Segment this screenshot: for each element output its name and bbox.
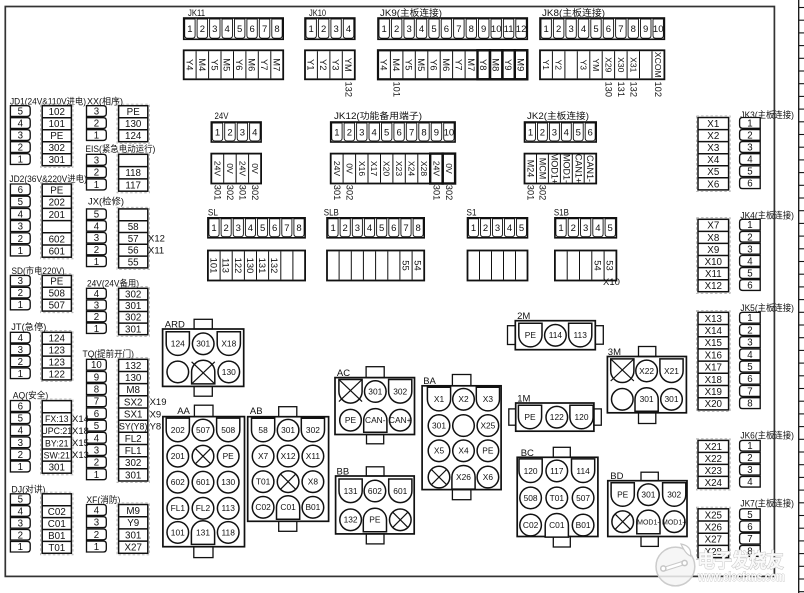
svg-text:1: 1	[18, 155, 23, 166]
svg-text:X1: X1	[707, 119, 719, 130]
svg-text:301: 301	[368, 386, 382, 396]
svg-text:SX1: SX1	[124, 410, 143, 421]
svg-text:132: 132	[125, 361, 141, 372]
svg-text:Y5: Y5	[404, 59, 415, 70]
svg-text:3: 3	[94, 518, 99, 529]
svg-text:SX2: SX2	[124, 397, 143, 408]
svg-text:131: 131	[344, 486, 358, 496]
svg-text:3: 3	[747, 465, 752, 476]
svg-text:Y5: Y5	[209, 59, 220, 70]
svg-text:FL2: FL2	[196, 503, 211, 513]
svg-text:302: 302	[306, 425, 320, 435]
svg-text:1: 1	[528, 127, 533, 138]
svg-text:132: 132	[628, 82, 638, 98]
svg-text:B01: B01	[305, 502, 320, 512]
svg-text:2: 2	[200, 24, 205, 35]
svg-text:6: 6	[747, 374, 752, 385]
svg-text:X6: X6	[483, 472, 494, 482]
svg-text:101: 101	[392, 82, 402, 98]
svg-text:11: 11	[504, 24, 514, 35]
svg-text:SD(市电220V): SD(市电220V)	[12, 265, 65, 276]
svg-text:301: 301	[196, 339, 210, 349]
svg-text:M6: M6	[441, 58, 452, 71]
svg-text:X17: X17	[369, 161, 379, 177]
svg-text:5: 5	[431, 24, 436, 35]
svg-text:2: 2	[394, 24, 399, 35]
svg-text:X2: X2	[707, 131, 719, 142]
svg-text:2: 2	[321, 24, 326, 35]
svg-text:3: 3	[18, 345, 23, 356]
svg-text:YM: YM	[343, 58, 354, 72]
svg-text:7: 7	[456, 24, 461, 35]
svg-text:EIS(紧急电动运行): EIS(紧急电动运行)	[85, 143, 155, 154]
svg-text:X8: X8	[308, 477, 319, 487]
svg-text:301: 301	[432, 421, 446, 431]
svg-text:2: 2	[94, 312, 99, 323]
svg-text:X9: X9	[150, 409, 162, 420]
svg-text:1: 1	[471, 223, 476, 234]
svg-text:120: 120	[575, 412, 589, 422]
svg-text:2: 2	[94, 245, 99, 256]
svg-text:113: 113	[574, 330, 588, 340]
svg-text:JK8(主板连接): JK8(主板连接)	[542, 7, 605, 18]
svg-text:131: 131	[616, 82, 626, 98]
svg-text:BY:21: BY:21	[45, 438, 69, 448]
svg-text:4: 4	[225, 24, 230, 35]
svg-text:3: 3	[94, 155, 99, 166]
svg-text:X10: X10	[603, 277, 620, 288]
svg-text:124: 124	[125, 131, 142, 142]
svg-text:1: 1	[330, 223, 335, 234]
svg-text:102: 102	[49, 107, 65, 118]
svg-text:Y2: Y2	[554, 60, 564, 71]
svg-text:131: 131	[196, 527, 210, 537]
svg-text:4: 4	[248, 223, 253, 234]
svg-text:118: 118	[125, 168, 141, 179]
svg-text:53: 53	[605, 260, 616, 270]
svg-text:302: 302	[444, 185, 454, 201]
svg-text:Y9: Y9	[503, 59, 514, 70]
svg-text:8: 8	[296, 223, 301, 234]
svg-text:3: 3	[406, 24, 411, 35]
svg-text:9: 9	[643, 24, 648, 35]
svg-text:X15: X15	[72, 438, 89, 449]
svg-text:301: 301	[332, 185, 342, 201]
svg-text:1: 1	[215, 127, 220, 138]
svg-text:5: 5	[379, 223, 384, 234]
svg-text:4: 4	[18, 507, 24, 518]
svg-text:2: 2	[540, 127, 545, 138]
svg-text:XF(消防): XF(消防)	[86, 494, 120, 505]
svg-text:4: 4	[747, 256, 753, 267]
svg-text:57: 57	[128, 234, 139, 245]
svg-text:601: 601	[196, 477, 210, 487]
svg-text:5: 5	[576, 127, 581, 138]
svg-text:5: 5	[519, 223, 524, 234]
svg-text:C01: C01	[48, 519, 66, 530]
svg-text:MOD1-: MOD1-	[561, 154, 571, 183]
svg-text:3: 3	[333, 24, 338, 35]
svg-text:508: 508	[524, 493, 538, 503]
svg-text:JD2(36V&220V进电): JD2(36V&220V进电)	[9, 173, 87, 184]
svg-text:302: 302	[125, 290, 141, 301]
svg-text:M7: M7	[466, 58, 477, 71]
svg-text:C02: C02	[255, 502, 271, 512]
svg-text:5: 5	[18, 495, 23, 506]
svg-text:CAN+: CAN+	[389, 415, 412, 425]
svg-text:YM: YM	[591, 58, 601, 71]
svg-text:3: 3	[236, 223, 241, 234]
svg-text:C01: C01	[280, 502, 296, 512]
svg-text:54: 54	[592, 260, 603, 270]
svg-text:4: 4	[747, 477, 753, 488]
svg-text:5: 5	[94, 210, 99, 221]
svg-text:2: 2	[483, 223, 488, 234]
svg-text:301: 301	[281, 425, 295, 435]
svg-text:C02: C02	[523, 520, 539, 530]
svg-text:X27: X27	[124, 543, 141, 554]
svg-text:101: 101	[209, 258, 220, 274]
svg-text:117: 117	[550, 466, 564, 476]
svg-text:Y6: Y6	[234, 59, 245, 70]
svg-text:10: 10	[491, 24, 502, 35]
svg-text:0V: 0V	[250, 163, 260, 174]
svg-text:4: 4	[252, 127, 257, 138]
svg-text:1: 1	[18, 246, 23, 257]
svg-text:1: 1	[18, 542, 23, 553]
svg-text:4: 4	[18, 209, 24, 220]
svg-text:301: 301	[125, 470, 141, 481]
svg-text:3: 3	[18, 222, 23, 233]
svg-text:302: 302	[49, 143, 65, 154]
svg-text:4: 4	[18, 333, 24, 344]
svg-text:JK7(主板连接): JK7(主板连接)	[740, 498, 794, 509]
svg-text:FL1: FL1	[171, 503, 186, 513]
svg-text:PE: PE	[524, 412, 536, 422]
svg-text:www.elecfans.com: www.elecfans.com	[697, 569, 785, 584]
svg-text:SL: SL	[208, 208, 218, 218]
svg-text:X17: X17	[705, 363, 722, 374]
svg-text:3: 3	[18, 518, 23, 529]
svg-text:118: 118	[222, 527, 236, 537]
svg-text:301: 301	[640, 394, 654, 404]
svg-text:JK12(功能备用端子): JK12(功能备用端子)	[334, 110, 422, 121]
svg-text:4: 4	[94, 222, 100, 233]
svg-text:M8: M8	[126, 385, 140, 396]
svg-text:117: 117	[125, 181, 141, 192]
svg-text:FL2: FL2	[125, 434, 142, 445]
svg-text:4: 4	[564, 127, 569, 138]
svg-text:X18: X18	[72, 426, 89, 437]
svg-text:302: 302	[125, 458, 141, 469]
svg-text:1: 1	[94, 131, 99, 142]
svg-text:X20: X20	[705, 399, 723, 410]
svg-text:122: 122	[550, 412, 564, 422]
svg-text:3: 3	[747, 143, 752, 154]
svg-text:302: 302	[250, 185, 260, 201]
svg-text:TQ(提前开门): TQ(提前开门)	[83, 348, 135, 359]
svg-text:1: 1	[18, 369, 23, 380]
svg-text:4: 4	[94, 289, 100, 300]
svg-text:4: 4	[18, 426, 24, 437]
svg-text:C02: C02	[48, 507, 66, 518]
svg-text:MCM: MCM	[537, 158, 547, 180]
svg-text:24V: 24V	[215, 111, 229, 121]
svg-text:3: 3	[94, 301, 99, 312]
svg-text:114: 114	[549, 330, 563, 340]
svg-text:X26: X26	[456, 472, 471, 482]
svg-text:JK6(主板连接): JK6(主板连接)	[740, 430, 794, 441]
svg-text:X11: X11	[306, 451, 321, 461]
svg-text:X5: X5	[434, 446, 445, 456]
svg-text:202: 202	[171, 425, 185, 435]
svg-text:XX(相序): XX(相序)	[87, 96, 123, 107]
svg-text:JK9(主板连接): JK9(主板连接)	[380, 7, 442, 18]
svg-text:C01: C01	[549, 520, 565, 530]
svg-text:PE: PE	[223, 451, 235, 461]
svg-text:M4: M4	[197, 58, 208, 71]
svg-text:4: 4	[94, 506, 100, 517]
svg-text:X29: X29	[603, 57, 613, 73]
svg-text:130: 130	[603, 82, 613, 98]
svg-text:4: 4	[367, 223, 372, 234]
svg-text:2: 2	[223, 223, 228, 234]
svg-text:X20: X20	[382, 161, 392, 177]
svg-text:6: 6	[249, 24, 254, 35]
svg-text:201: 201	[49, 210, 65, 221]
svg-text:M9: M9	[516, 58, 527, 71]
svg-text:301: 301	[431, 185, 441, 201]
svg-text:X12: X12	[705, 281, 722, 292]
svg-text:6: 6	[747, 179, 752, 190]
svg-text:3: 3	[747, 338, 752, 349]
svg-text:X28: X28	[419, 161, 429, 177]
svg-text:B01: B01	[48, 531, 65, 542]
svg-text:8: 8	[469, 24, 474, 35]
svg-text:X22: X22	[639, 366, 654, 376]
svg-text:PE: PE	[525, 330, 537, 340]
svg-text:5: 5	[384, 127, 389, 138]
svg-text:6: 6	[396, 127, 401, 138]
svg-text:131: 131	[257, 258, 268, 274]
svg-text:10: 10	[653, 24, 664, 35]
svg-text:1: 1	[747, 313, 752, 324]
svg-text:301: 301	[213, 185, 223, 201]
svg-text:1: 1	[747, 118, 752, 129]
svg-text:6: 6	[18, 402, 23, 413]
svg-text:2: 2	[18, 530, 23, 541]
svg-text:122: 122	[49, 369, 65, 380]
svg-text:6: 6	[747, 522, 752, 533]
svg-text:5: 5	[18, 107, 23, 118]
svg-text:114: 114	[576, 466, 590, 476]
svg-text:X2: X2	[458, 394, 469, 404]
svg-text:S1B: S1B	[554, 208, 569, 218]
svg-text:56: 56	[128, 246, 139, 257]
svg-text:301: 301	[665, 394, 679, 404]
svg-text:2: 2	[18, 357, 23, 368]
svg-text:301: 301	[125, 530, 141, 541]
svg-text:5: 5	[18, 197, 23, 208]
svg-text:3: 3	[552, 127, 557, 138]
svg-text:2: 2	[747, 131, 752, 142]
svg-text:X30: X30	[616, 57, 626, 73]
svg-text:5: 5	[260, 223, 265, 234]
svg-text:202: 202	[49, 198, 65, 209]
svg-text:0V: 0V	[225, 163, 235, 174]
svg-text:FX:13: FX:13	[45, 414, 69, 424]
svg-text:4: 4	[507, 223, 512, 234]
svg-text:X22: X22	[705, 454, 722, 465]
svg-text:7: 7	[284, 223, 289, 234]
svg-text:PE: PE	[127, 107, 141, 118]
svg-text:3: 3	[240, 127, 245, 138]
svg-text:JX(检修): JX(检修)	[88, 196, 124, 207]
svg-text:X12: X12	[148, 234, 165, 245]
svg-text:2: 2	[18, 234, 23, 245]
svg-text:5: 5	[94, 421, 99, 432]
svg-text:X7: X7	[258, 451, 269, 461]
svg-text:3: 3	[359, 127, 364, 138]
svg-text:4: 4	[346, 24, 351, 35]
svg-text:4: 4	[747, 155, 753, 166]
svg-text:508: 508	[221, 425, 235, 435]
svg-text:X13: X13	[705, 314, 723, 325]
svg-text:1: 1	[94, 542, 99, 553]
svg-text:24V: 24V	[213, 161, 223, 177]
svg-text:9: 9	[481, 24, 486, 35]
svg-text:301: 301	[49, 155, 65, 166]
svg-text:5: 5	[747, 362, 752, 373]
svg-text:X6: X6	[707, 179, 720, 190]
svg-text:3: 3	[747, 244, 752, 255]
svg-text:8: 8	[421, 127, 426, 138]
svg-text:113: 113	[221, 258, 232, 273]
svg-text:301: 301	[526, 185, 536, 201]
svg-text:1: 1	[382, 24, 387, 35]
svg-text:122: 122	[233, 258, 244, 274]
svg-text:132: 132	[344, 515, 358, 525]
svg-text:1: 1	[94, 180, 99, 191]
svg-text:1: 1	[544, 24, 549, 35]
svg-text:PE: PE	[50, 186, 64, 197]
svg-text:6: 6	[606, 24, 611, 35]
svg-text:5: 5	[747, 269, 752, 280]
svg-text:X13: X13	[72, 450, 89, 461]
svg-text:M5: M5	[416, 58, 427, 71]
svg-text:CAN-: CAN-	[365, 415, 386, 425]
svg-text:X31: X31	[628, 57, 638, 73]
svg-text:302: 302	[125, 313, 141, 324]
svg-text:X15: X15	[705, 338, 723, 349]
svg-text:6: 6	[747, 281, 752, 292]
svg-text:PE: PE	[50, 277, 64, 288]
svg-text:2: 2	[347, 127, 352, 138]
svg-text:3: 3	[18, 276, 23, 287]
svg-text:B01: B01	[576, 520, 591, 530]
svg-text:201: 201	[171, 451, 185, 461]
svg-text:1: 1	[211, 223, 216, 234]
svg-text:3: 3	[583, 223, 588, 234]
svg-text:PE: PE	[345, 415, 357, 425]
svg-text:3: 3	[94, 445, 99, 456]
svg-text:X23: X23	[705, 466, 723, 477]
svg-text:3: 3	[568, 24, 573, 35]
svg-text:X18: X18	[221, 339, 236, 349]
svg-text:X1: X1	[434, 394, 445, 404]
svg-text:PE: PE	[482, 446, 494, 456]
svg-text:MOD1+: MOD1+	[549, 153, 559, 184]
svg-text:130: 130	[221, 477, 235, 487]
svg-text:12: 12	[516, 24, 527, 35]
svg-text:301: 301	[49, 463, 65, 474]
svg-text:XCOM: XCOM	[653, 52, 663, 78]
svg-text:M24: M24	[526, 160, 536, 178]
svg-text:6: 6	[391, 223, 396, 234]
svg-text:4: 4	[419, 24, 424, 35]
svg-text:601: 601	[49, 247, 65, 258]
svg-text:6: 6	[444, 24, 449, 35]
svg-text:M4: M4	[391, 58, 402, 71]
svg-text:X8: X8	[707, 233, 720, 244]
svg-text:X4: X4	[707, 155, 720, 166]
svg-text:1: 1	[558, 223, 563, 234]
svg-text:X21: X21	[705, 442, 722, 453]
svg-text:302: 302	[393, 386, 407, 396]
svg-text:54: 54	[413, 260, 424, 270]
svg-text:3: 3	[495, 223, 500, 234]
svg-text:SW:21: SW:21	[44, 450, 70, 460]
svg-text:4: 4	[18, 119, 24, 130]
svg-text:130: 130	[245, 258, 256, 274]
svg-text:8: 8	[274, 24, 279, 35]
svg-text:302: 302	[667, 490, 681, 500]
svg-text:0V: 0V	[344, 163, 354, 174]
svg-text:24V: 24V	[332, 161, 342, 177]
svg-text:M8: M8	[491, 58, 502, 71]
svg-text:Y3: Y3	[579, 60, 589, 71]
svg-text:JK11: JK11	[188, 8, 205, 18]
svg-text:X26: X26	[705, 523, 723, 534]
svg-text:X24: X24	[705, 478, 723, 489]
svg-text:8: 8	[747, 399, 752, 410]
svg-text:10: 10	[91, 360, 102, 371]
svg-text:55: 55	[401, 260, 412, 270]
svg-text:X5: X5	[707, 167, 720, 178]
svg-text:X19: X19	[150, 397, 167, 408]
svg-text:2: 2	[227, 127, 232, 138]
svg-text:602: 602	[49, 234, 65, 245]
svg-text:132: 132	[344, 82, 354, 98]
svg-text:130: 130	[125, 119, 142, 130]
svg-text:3: 3	[94, 107, 99, 118]
svg-text:6: 6	[588, 127, 593, 138]
svg-text:1: 1	[94, 257, 99, 268]
svg-text:JK10: JK10	[309, 8, 326, 18]
svg-text:JK5(主板连接): JK5(主板连接)	[740, 302, 794, 313]
svg-text:SLB: SLB	[324, 208, 339, 218]
svg-text:2: 2	[343, 223, 348, 234]
svg-text:Y2: Y2	[318, 59, 329, 70]
svg-text:X16: X16	[705, 350, 723, 361]
svg-text:1: 1	[18, 462, 23, 473]
svg-text:MOD1+: MOD1+	[662, 520, 686, 527]
svg-text:24V: 24V	[431, 161, 441, 177]
svg-text:X14: X14	[72, 414, 89, 425]
svg-text:2: 2	[747, 232, 752, 243]
svg-text:T01: T01	[550, 493, 565, 503]
svg-text:301: 301	[125, 301, 141, 312]
